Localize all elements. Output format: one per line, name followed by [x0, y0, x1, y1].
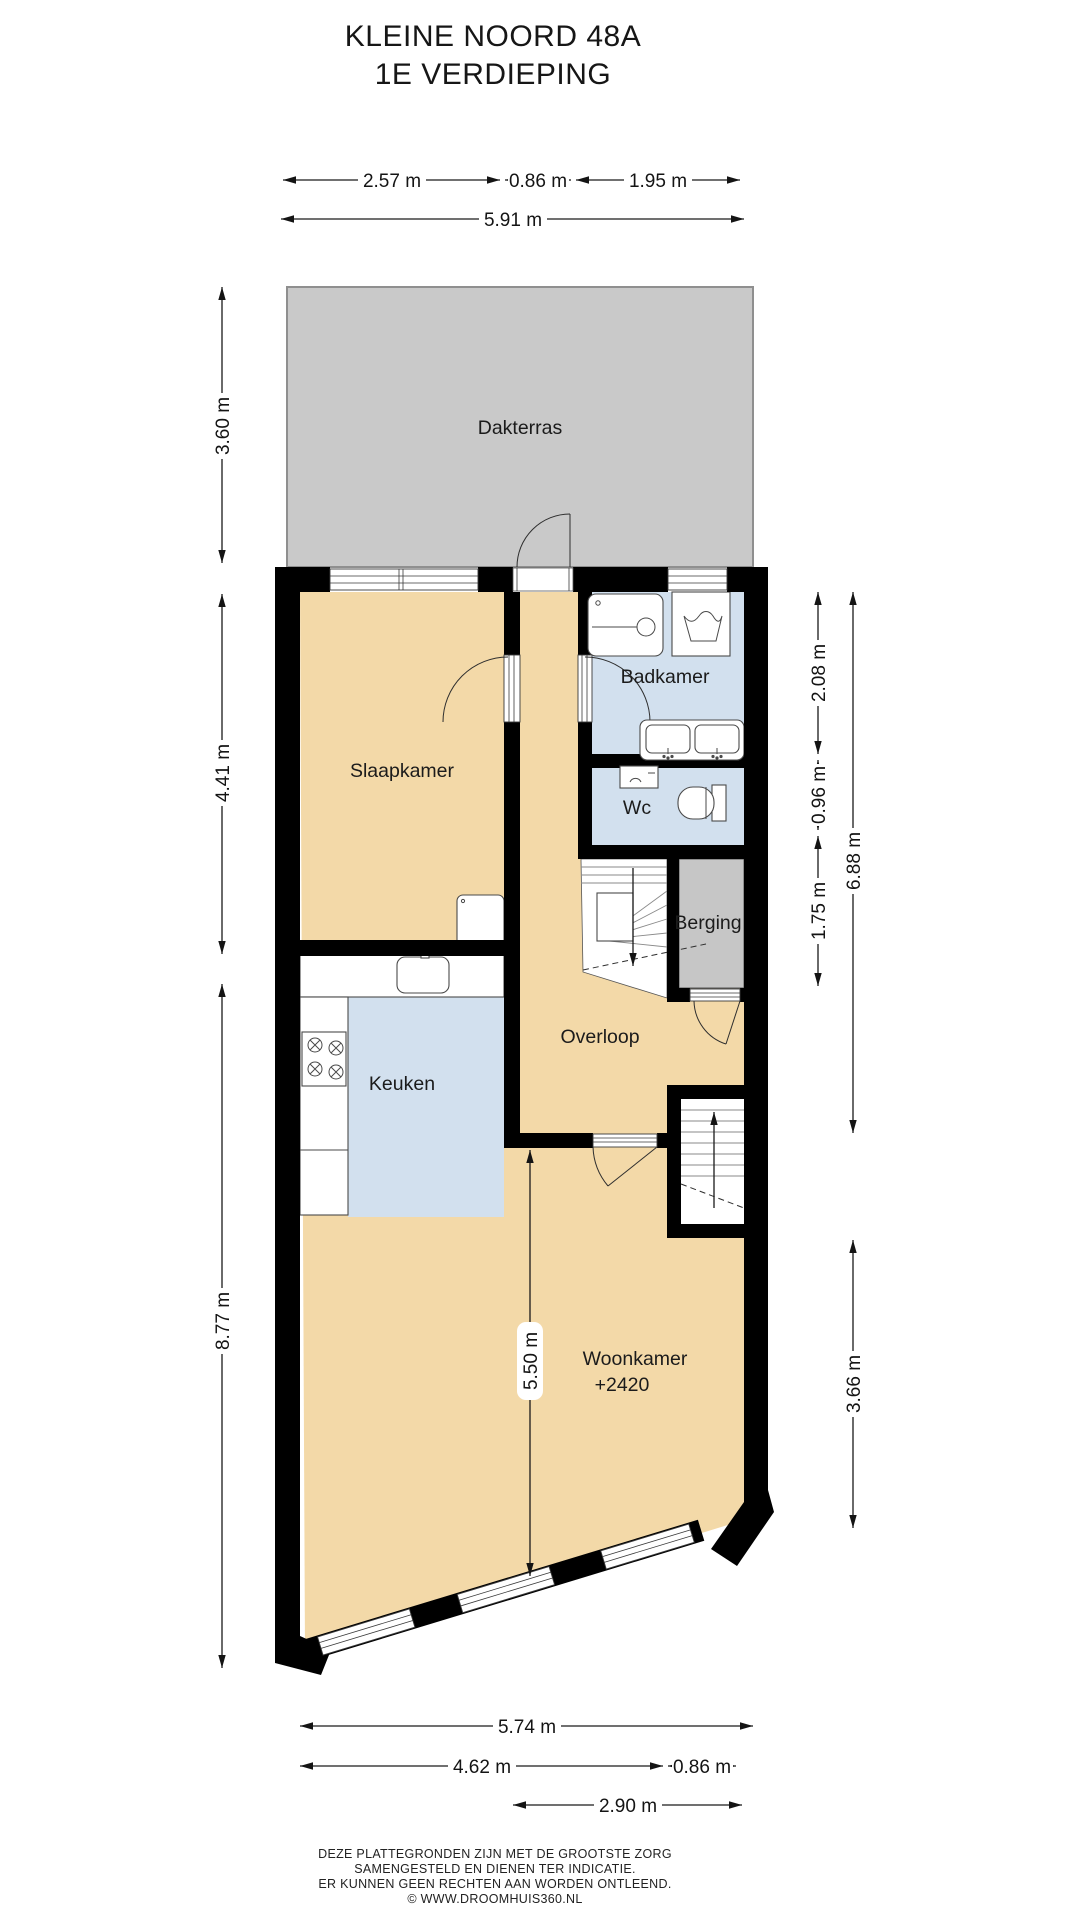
floorplan-page: KLEINE NOORD 48A 1E VERDIEPING: [0, 0, 1080, 1920]
dim-bottom-inner: 2.90 m: [599, 1796, 657, 1817]
page-title: KLEINE NOORD 48A: [345, 20, 641, 53]
dim-right-total: 6.88 m: [844, 832, 865, 890]
dim-right-2: 0.96 m: [809, 766, 830, 824]
footer-line-2: SAMENGESTELD EN DIENEN TER INDICATIE.: [354, 1862, 636, 1876]
berging-door-frame: [690, 989, 740, 1001]
page-subtitle: 1E VERDIEPING: [375, 58, 612, 91]
wc-sink: [620, 766, 658, 788]
dim-left-2: 4.41 m: [213, 744, 234, 802]
dim-left-3: 8.77 m: [213, 1292, 234, 1350]
footer-line-4: © WWW.DROOMHUIS360.NL: [407, 1892, 582, 1906]
shower: [588, 594, 663, 656]
kitchen-counter-left: [300, 997, 348, 1215]
dim-interior: 5.50 m: [521, 1332, 542, 1390]
bathroom-door-frame: [578, 655, 592, 722]
footer-line-3: ER KUNNEN GEEN RECHTEN AAN WORDEN ONTLEE…: [318, 1877, 671, 1891]
dim-right-1: 2.08 m: [809, 644, 830, 702]
floor-plan-canvas: KLEINE NOORD 48A 1E VERDIEPING: [0, 0, 1080, 1920]
dim-top-3: 1.95 m: [629, 171, 687, 192]
label-overloop: Overloop: [560, 1026, 639, 1048]
stairs-lower: [667, 1085, 744, 1238]
dim-left-1: 3.60 m: [213, 397, 234, 455]
label-woonkamer: Woonkamer: [583, 1348, 688, 1370]
label-woonkamer-level: +2420: [595, 1374, 650, 1396]
terrace-door-opening: [513, 568, 573, 591]
label-keuken: Keuken: [369, 1073, 435, 1095]
dim-bottom-total: 5.74 m: [498, 1717, 556, 1738]
label-wc: Wc: [623, 797, 651, 819]
badkamer-window: [668, 569, 727, 590]
label-slaapkamer: Slaapkamer: [350, 760, 455, 782]
footer-disclaimer: DEZE PLATTEGRONDEN ZIJN MET DE GROOTSTE …: [318, 1847, 672, 1906]
dim-bottom-2: 0.86 m: [673, 1757, 731, 1778]
washing-machine: [672, 592, 730, 656]
label-badkamer: Badkamer: [621, 666, 710, 688]
bedroom-door-frame: [504, 655, 520, 722]
dim-top-2: 0.86 m: [509, 171, 567, 192]
dim-bottom-1: 4.62 m: [453, 1757, 511, 1778]
title-block: KLEINE NOORD 48A 1E VERDIEPING: [345, 20, 641, 91]
dim-right-3: 1.75 m: [809, 882, 830, 940]
dim-top-1: 2.57 m: [363, 171, 421, 192]
label-berging: Berging: [674, 912, 741, 934]
slaapkamer-window: [330, 569, 478, 590]
woonkamer-door-frame: [593, 1134, 657, 1147]
stairs-landing: [597, 893, 633, 941]
keuken-floor: [348, 997, 504, 1217]
dim-right-lower: 3.66 m: [844, 1355, 865, 1413]
toilet-bowl: [678, 787, 714, 819]
dim-top-total: 5.91 m: [484, 210, 542, 231]
kitchen-sink: [397, 957, 449, 993]
label-dakterras: Dakterras: [478, 417, 563, 439]
footer-line-1: DEZE PLATTEGRONDEN ZIJN MET DE GROOTSTE …: [318, 1847, 672, 1861]
